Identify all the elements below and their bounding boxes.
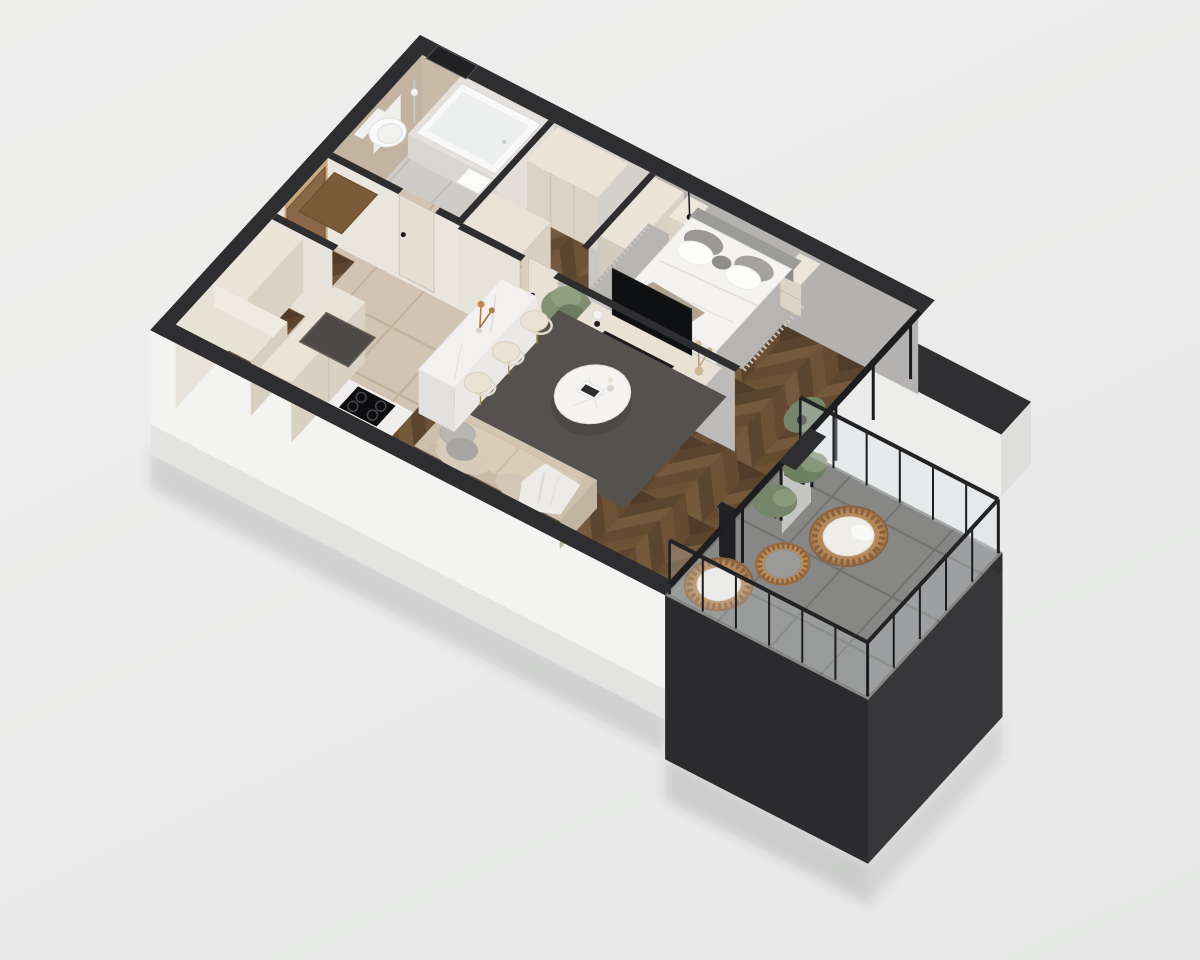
floorplan-stage [0, 0, 1200, 960]
bar-stool-2-seat [492, 342, 519, 362]
bathtub-drain [502, 140, 506, 144]
dried-flower-vase [694, 367, 703, 376]
decor-vase-black [594, 321, 600, 327]
bar-stool-1-seat [521, 311, 548, 331]
coffee-table-vase [607, 385, 614, 392]
bar-stool-3-seat [464, 373, 491, 393]
decor-vase-white-1 [593, 310, 602, 319]
balcony-table-top [764, 550, 801, 578]
island-flower-vase [476, 327, 482, 333]
coffee-table-flowers [608, 378, 613, 383]
toilet-paper-roll [411, 89, 418, 96]
island-flower-bloom-2 [489, 307, 495, 313]
island-flower-bloom-1 [478, 301, 485, 308]
bathroom-door-leaf [399, 195, 434, 293]
apartment-3d-floorplan-render [0, 0, 1200, 960]
bathroom-door-handle [401, 232, 406, 237]
